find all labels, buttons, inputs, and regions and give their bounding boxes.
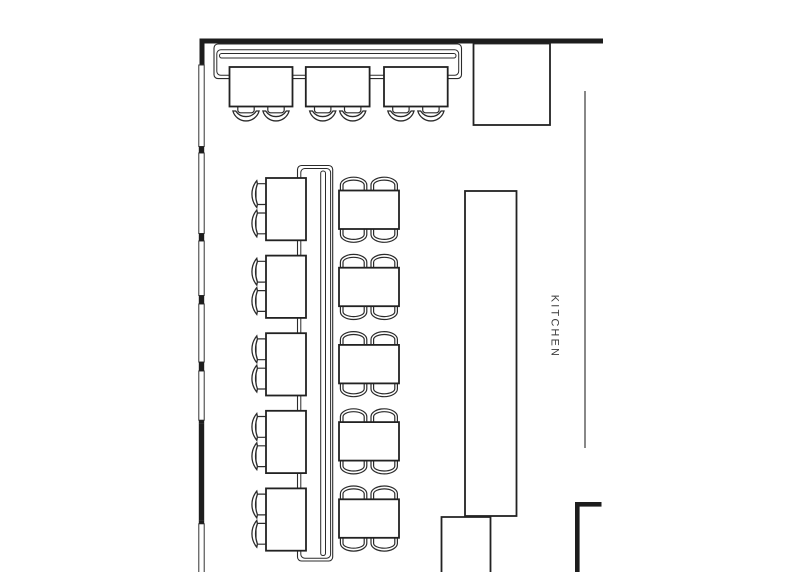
svg-text:KITCHEN: KITCHEN [548, 295, 560, 359]
